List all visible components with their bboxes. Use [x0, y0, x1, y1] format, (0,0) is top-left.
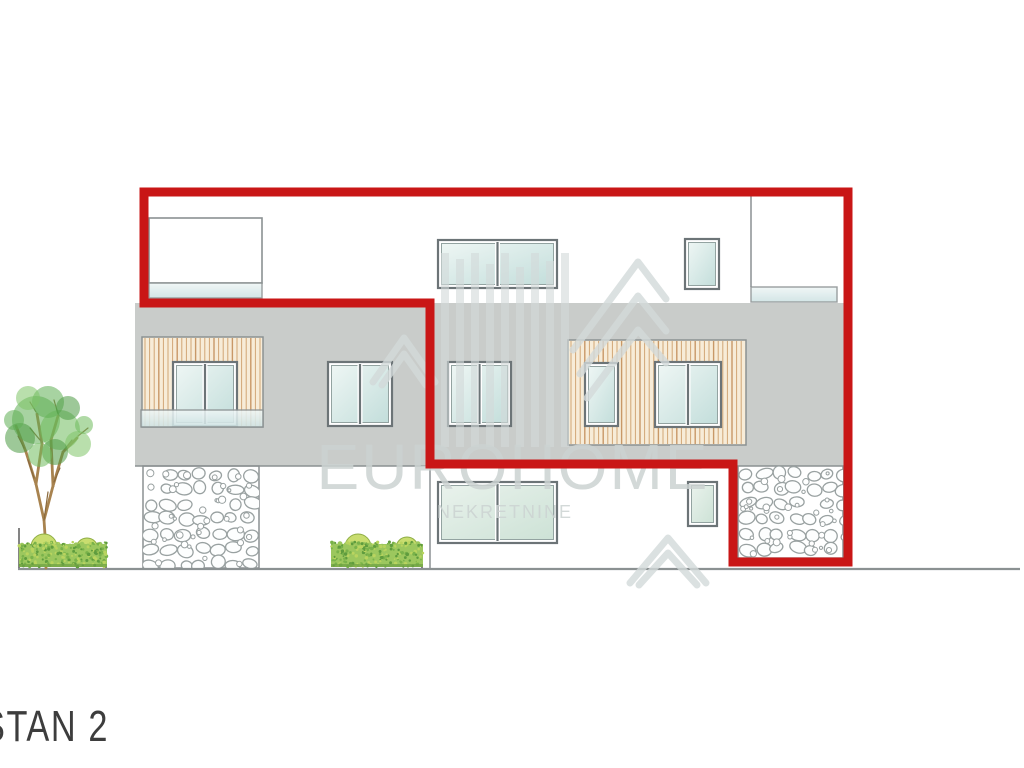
unit-outline-path [144, 192, 848, 562]
unit-label: STAN 2 [0, 702, 109, 752]
highlighted-unit-outline [0, 0, 1024, 768]
elevation-page: EUROHOME NEKRETNINE STAN 2 [0, 0, 1024, 768]
